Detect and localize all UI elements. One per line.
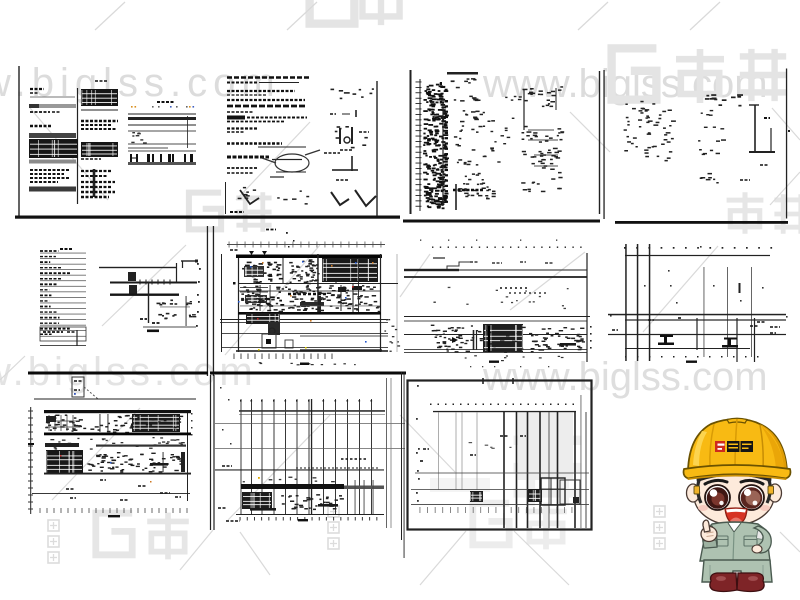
svg-text:www.biglss.com: www.biglss.com [482,355,768,399]
